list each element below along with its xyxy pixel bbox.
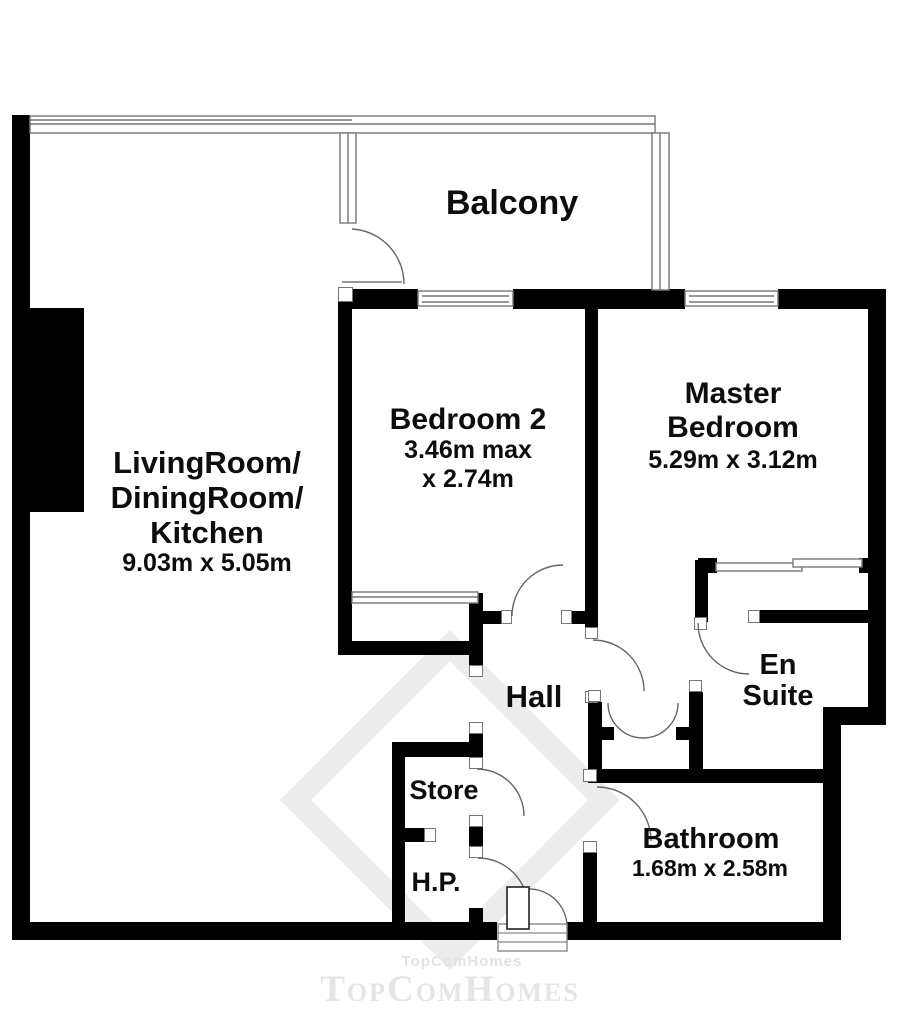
room-label-bathroom: Bathroom (643, 825, 780, 854)
room-label-ensuite-1: En (759, 651, 796, 680)
entrance-door-leaf (507, 887, 529, 929)
room-label-living-1: LivingRoom/ (113, 447, 301, 478)
door-arc-ensuite (698, 623, 749, 674)
room-dims-master: 5.29m x 3.12m (648, 448, 818, 473)
room-label-living-3: Kitchen (150, 517, 264, 548)
room-dims-bedroom2-1: 3.46m max (404, 438, 532, 463)
floorplan: Balcony LivingRoom/ DiningRoom/ Kitchen … (0, 0, 900, 1022)
room-label-store: Store (409, 777, 478, 804)
door-arc-cupboard-right (643, 703, 678, 738)
wardrobe-master-a (716, 563, 802, 571)
room-label-master-2: Bedroom (667, 413, 799, 443)
room-label-hall: Hall (506, 681, 563, 712)
door-arc-store (477, 769, 524, 816)
room-label-living-2: DiningRoom/ (111, 482, 304, 513)
door-arc-master (593, 640, 644, 691)
room-label-bedroom2: Bedroom 2 (390, 405, 547, 435)
room-label-master-1: Master (685, 379, 782, 409)
room-dims-living: 9.03m x 5.05m (122, 551, 292, 576)
door-arc-bedroom2 (512, 565, 563, 616)
room-label-balcony: Balcony (446, 186, 578, 220)
window-master (685, 291, 778, 306)
wardrobe-master-b (793, 559, 862, 567)
room-label-hp: H.P. (411, 869, 460, 896)
room-label-ensuite-2: Suite (743, 682, 814, 711)
door-arc-cupboard-left (608, 703, 643, 738)
door-arc-entrance (529, 889, 567, 927)
window-bedroom2 (418, 291, 513, 306)
room-dims-bathroom: 1.68m x 2.58m (632, 857, 788, 880)
room-dims-bedroom2-2: x 2.74m (422, 467, 514, 492)
door-arc-balcony (352, 229, 404, 284)
